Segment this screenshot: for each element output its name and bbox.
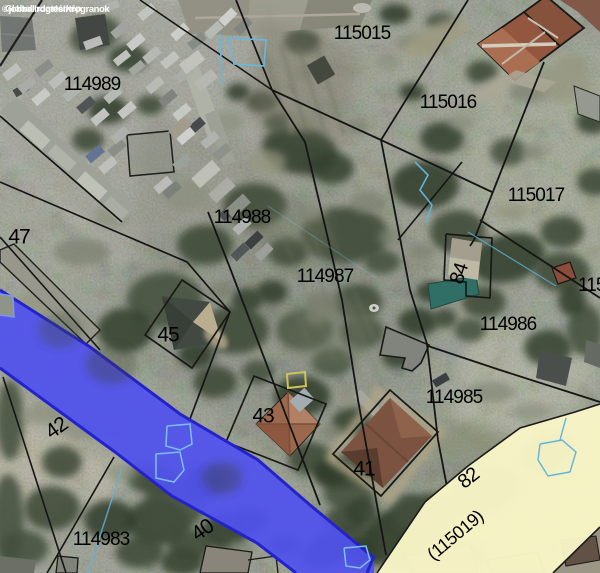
svg-text:114983: 114983 <box>73 529 130 550</box>
svg-text:114987: 114987 <box>297 266 354 287</box>
svg-text:114985: 114985 <box>426 387 483 408</box>
svg-text:1150: 1150 <box>578 275 600 296</box>
svg-text:115017: 115017 <box>508 185 565 206</box>
svg-text:115016: 115016 <box>420 92 477 113</box>
svg-text:45: 45 <box>157 324 179 347</box>
svg-text:114989: 114989 <box>64 74 121 95</box>
svg-text:Globalindextérkép: Globalindextérkép <box>5 4 82 15</box>
svg-text:114988: 114988 <box>214 207 271 228</box>
svg-text:43: 43 <box>252 405 274 428</box>
svg-text:47: 47 <box>8 226 30 249</box>
svg-text:115015: 115015 <box>334 23 391 44</box>
svg-text:41: 41 <box>353 458 375 481</box>
svg-text:114986: 114986 <box>480 314 537 335</box>
